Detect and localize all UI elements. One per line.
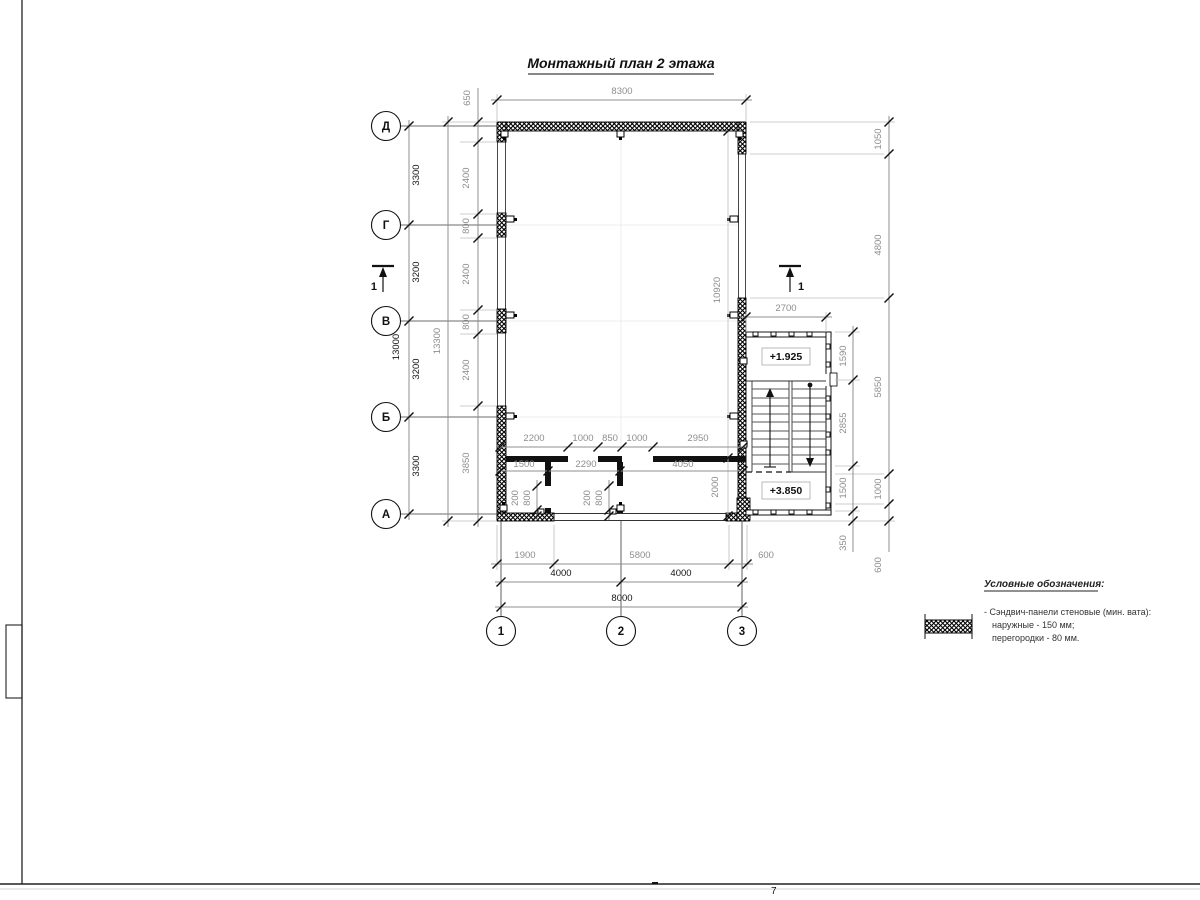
- section-marks: 1 1: [371, 266, 804, 293]
- wall-top: [497, 122, 746, 131]
- dim-left-axis-1: 3300: [411, 164, 422, 185]
- axis-row-g: Г: [383, 220, 390, 232]
- axis-bubbles: [372, 112, 757, 646]
- dim-part1-1000a: 1000: [572, 433, 593, 444]
- dim-stair-width: 2700: [775, 303, 796, 314]
- section-label-right: 1: [798, 281, 804, 293]
- section-mark-left: 1: [371, 266, 394, 293]
- dim-left-axis-2: 3200: [411, 261, 422, 282]
- axis-row-b: Б: [382, 412, 390, 424]
- dim-right-5850: 5850: [873, 376, 884, 397]
- axis-col-3: 3: [739, 626, 745, 638]
- dim-left-overall: 13300: [432, 328, 443, 354]
- dim-part2-2290: 2290: [575, 459, 596, 470]
- dim-left-axis-4: 3300: [411, 455, 422, 476]
- dim-part2-4050: 4050: [672, 459, 693, 470]
- stair-door-leaf: [830, 373, 837, 386]
- binding-mark: [6, 625, 22, 698]
- dim-right-1050: 1050: [873, 128, 884, 149]
- axis-bubble-labels: Д Г В Б А 1 2 3: [382, 121, 745, 638]
- dimensions-right: 1590 2855 1500 350 1050 4800 5850 1000 6…: [740, 116, 895, 573]
- dim-wall-2400b: 2400: [461, 263, 472, 284]
- axis-gridlines: [506, 131, 738, 447]
- dimensions-bottom: 1900 5800 600 4000 4000 8000: [491, 521, 774, 616]
- wall-stair-corner: [737, 498, 750, 521]
- dim-part1-2950: 2950: [687, 433, 708, 444]
- section-label-left: 1: [371, 281, 377, 293]
- dim-left-axis-3: 3200: [411, 358, 422, 379]
- dim-top-width: 8300: [611, 86, 632, 97]
- dim-stub2-800: 800: [594, 490, 605, 506]
- dimensions-top: 8300: [491, 86, 752, 122]
- wall-bottom-left: [497, 513, 554, 521]
- dim-bottom-8000: 8000: [611, 593, 632, 604]
- partition-stub1-jamb: [545, 508, 551, 513]
- dim-bottom-600: 600: [758, 550, 774, 561]
- dim-wall-2400a: 2400: [461, 167, 472, 188]
- axis-row-a: А: [382, 509, 390, 521]
- dim-right-4800: 4800: [873, 234, 884, 255]
- dim-bottom-1900: 1900: [514, 550, 535, 561]
- dim-wall-2400c: 2400: [461, 359, 472, 380]
- stair-down-arrow: [806, 383, 814, 467]
- dim-right-600: 600: [873, 557, 884, 573]
- stair-wall-bottom: [746, 510, 831, 515]
- dim-hall-depth: 10920: [712, 277, 723, 303]
- dim-wall-3850: 3850: [461, 452, 472, 473]
- wall-right-lower: [738, 298, 746, 514]
- wall-left-pier-g: [497, 213, 506, 237]
- dim-bottom-4000b: 4000: [670, 568, 691, 579]
- dim-right-1000: 1000: [873, 478, 884, 499]
- dim-stub1-800: 800: [522, 490, 533, 506]
- axis-row-d: Д: [382, 121, 390, 133]
- dimensions-left: 3300 3200 3200 3300 13000 13300 650 2400…: [391, 88, 497, 527]
- lower-level-label: +3.850: [770, 485, 803, 497]
- legend-item-line2: наружные - 150 мм;: [992, 620, 1074, 630]
- dim-part1-2200: 2200: [523, 433, 544, 444]
- legend: Условные обозначения: - Сэндвич-панели с…: [925, 578, 1151, 643]
- wall-left-pier-v: [497, 309, 506, 333]
- legend-item-line3: перегородки - 80 мм.: [992, 633, 1079, 643]
- axis-col-2: 2: [618, 626, 624, 638]
- legend-wall-symbol: [925, 614, 972, 639]
- dim-right-1590: 1590: [838, 345, 849, 366]
- dim-part1-850: 850: [602, 433, 618, 444]
- dim-right-350: 350: [838, 535, 849, 551]
- dim-stub2-200: 200: [582, 490, 593, 506]
- floor-plan-svg: 7 Монтажный план 2 этажа: [0, 0, 1200, 900]
- dim-right-2855: 2855: [838, 412, 849, 433]
- section-mark-right: 1: [779, 266, 804, 293]
- dim-wall-650: 650: [462, 90, 473, 106]
- walls: [497, 122, 750, 521]
- page-number: 7: [771, 886, 777, 897]
- upper-level-label: +1.925: [770, 351, 803, 363]
- dim-right-1500: 1500: [838, 477, 849, 498]
- dim-wall-800b: 800: [461, 314, 472, 330]
- title-block: Монтажный план 2 этажа: [527, 55, 715, 74]
- dim-part2-1500: 1500: [513, 459, 534, 470]
- dim-bottom-4000a: 4000: [550, 568, 571, 579]
- page-title: Монтажный план 2 этажа: [527, 55, 715, 71]
- dim-wall-800a: 800: [461, 218, 472, 234]
- legend-title: Условные обозначения:: [984, 578, 1104, 590]
- staircase: +1.925 +3.850: [746, 332, 837, 515]
- dim-stub1-200: 200: [510, 490, 521, 506]
- stair-wall-top: [746, 332, 831, 337]
- axis-row-v: В: [382, 316, 390, 328]
- legend-item-line1: - Сэндвич-панели стеновые (мин. вата):: [984, 607, 1151, 617]
- drawing-sheet: 7 Монтажный план 2 этажа: [0, 0, 1200, 900]
- dim-room-depth: 2000: [710, 476, 721, 497]
- dim-part1-1000b: 1000: [626, 433, 647, 444]
- partition-seg2: [598, 456, 622, 462]
- partition-seg3: [653, 456, 746, 462]
- sheet-frame: 7: [0, 0, 1200, 897]
- dim-left-total: 13000: [391, 334, 402, 360]
- dim-bottom-5800: 5800: [629, 550, 650, 561]
- axis-col-1: 1: [498, 626, 505, 638]
